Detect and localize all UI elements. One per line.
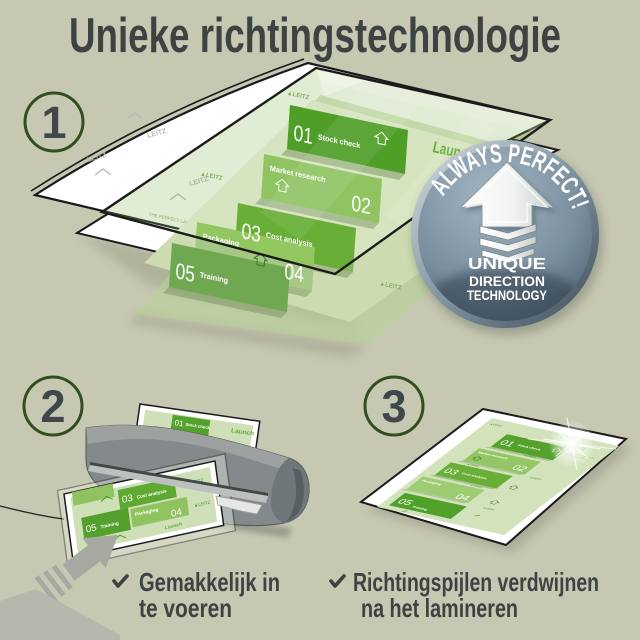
svg-text:1: 1 [41,97,66,148]
svg-text:UNIQUE: UNIQUE [468,256,546,273]
svg-text:na het lamineren: na het lamineren [361,593,518,623]
svg-text:3: 3 [381,381,406,432]
svg-text:03: 03 [241,218,262,247]
svg-text:TECHNOLOGY: TECHNOLOGY [467,288,547,303]
svg-text:DIRECTION: DIRECTION [469,274,545,289]
svg-text:Unieke richtingstechnologie: Unieke richtingstechnologie [69,9,561,63]
svg-text:05: 05 [175,258,196,287]
svg-text:te voeren: te voeren [139,593,232,623]
svg-text:2: 2 [40,381,65,432]
svg-text:01: 01 [293,120,314,149]
svg-text:02: 02 [351,190,372,219]
